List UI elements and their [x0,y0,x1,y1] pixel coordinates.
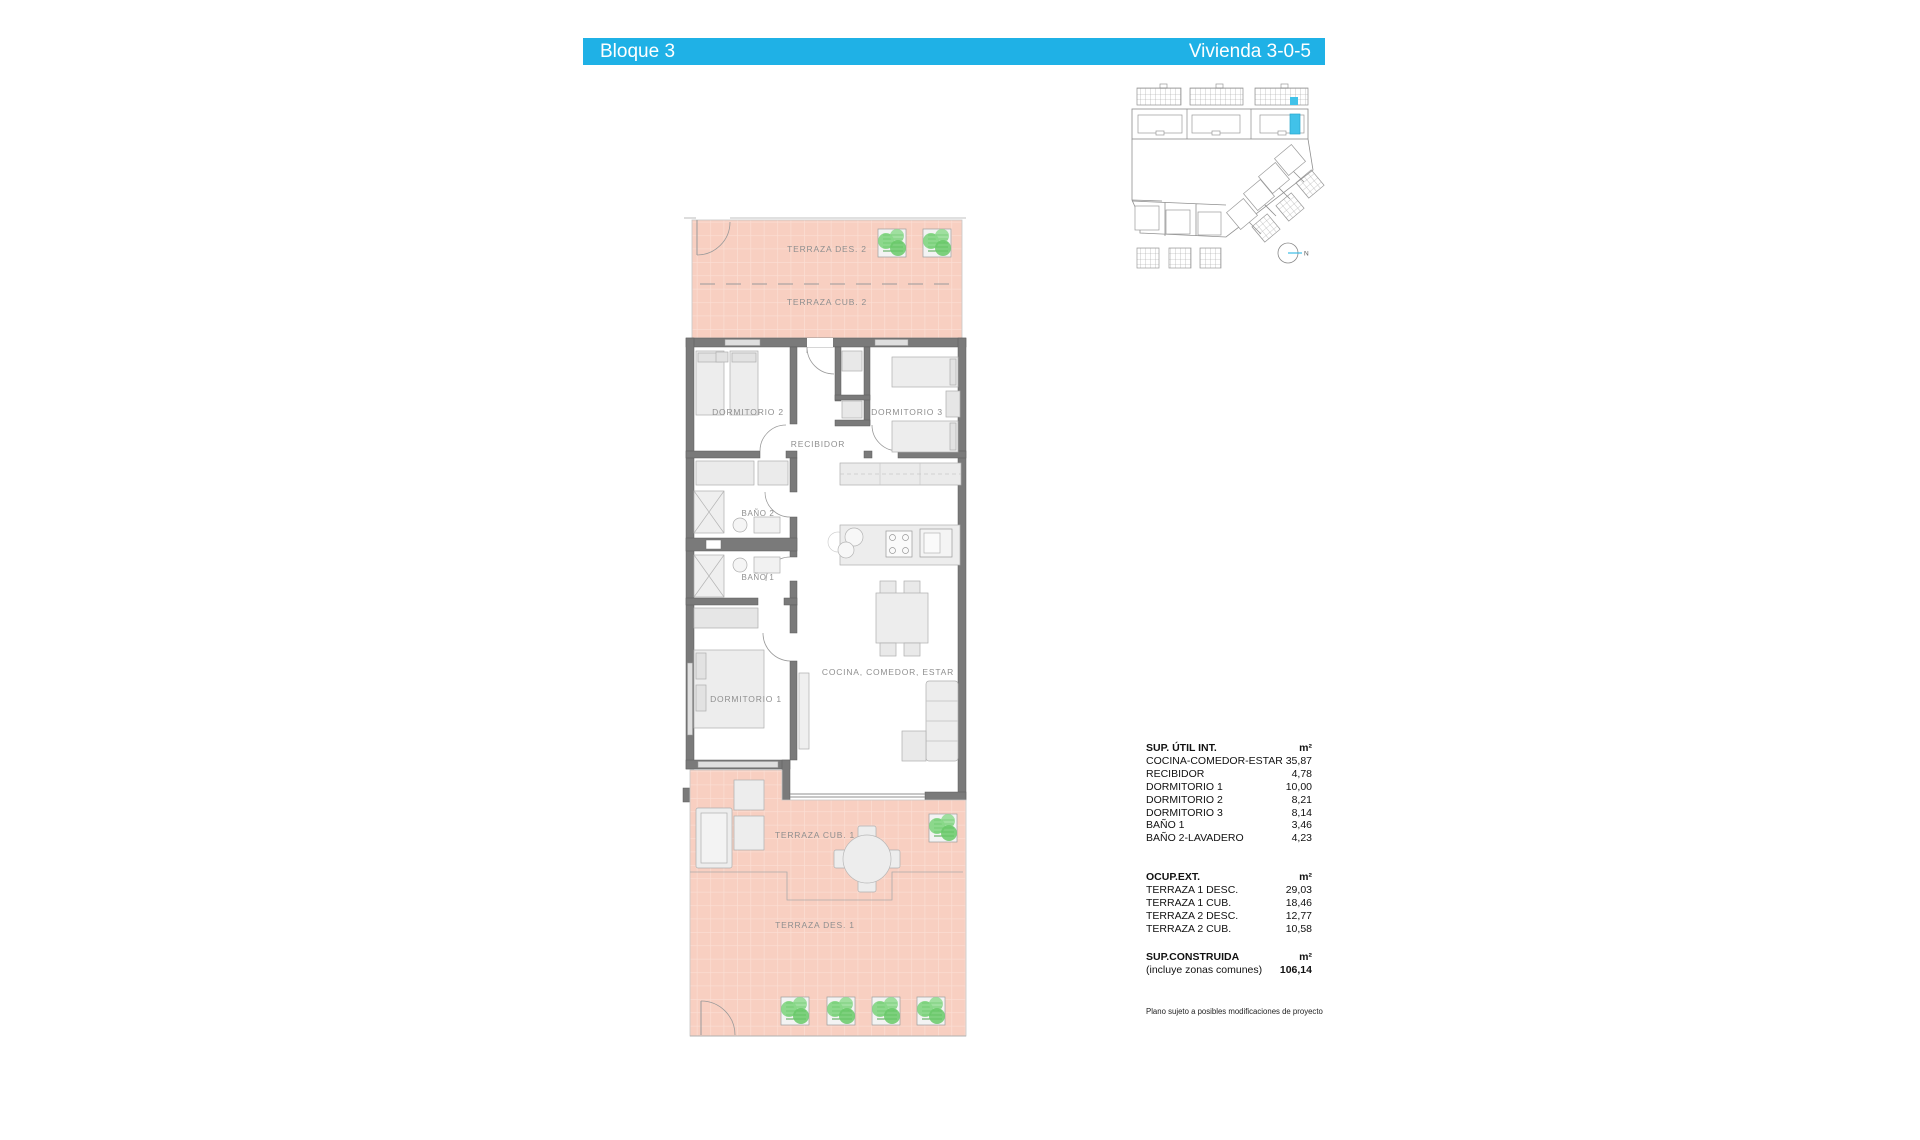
plant-icon [872,997,900,1025]
terraza-cub-2-label: TERRAZA CUB. 2 [787,297,867,307]
dormitorio-2-label: DORMITORIO 2 [712,407,784,417]
row-label: TERRAZA 2 CUB. [1146,923,1231,936]
row-value: 8,14 [1292,807,1312,820]
table-row: RECIBIDOR4,78 [1146,768,1312,781]
row-label: DORMITORIO 1 [1146,781,1223,794]
row-value: 8,21 [1292,794,1312,807]
row-value: 12,77 [1286,910,1312,923]
table-row: TERRAZA 1 CUB.18,46 [1146,897,1312,910]
row-value: 4,23 [1292,832,1312,845]
row-label: BAÑO 1 [1146,819,1185,832]
header-bar: Bloque 3 Vivienda 3-0-5 [583,38,1325,65]
row-label: DORMITORIO 2 [1146,794,1223,807]
terraza-des-2-label: TERRAZA DES. 2 [787,244,867,254]
row-value: 3,46 [1292,819,1312,832]
table-row: DORMITORIO 28,21 [1146,794,1312,807]
site-plan: N [1120,72,1340,272]
page: Bloque 3 Vivienda 3-0-5 [0,0,1920,1140]
cocina-comedor-estar-label: COCINA, COMEDOR, ESTAR [822,667,954,677]
row-value: 106,14 [1280,964,1312,977]
terraza-cub-1-label: TERRAZA CUB. 1 [775,830,855,840]
table-section-ocup-ext: OCUP.EXT. m² TERRAZA 1 DESC.29,03 TERRAZ… [1146,871,1312,936]
recibidor-label: RECIBIDOR [791,439,845,449]
section-title: SUP. ÚTIL INT. [1146,742,1217,755]
table-section-header: SUP. ÚTIL INT. m² [1146,742,1312,755]
plant-icon [929,814,957,842]
bano-2-label: BAÑO 2 [742,509,775,518]
table-section-sup-util: SUP. ÚTIL INT. m² COCINA-COMEDOR-ESTAR35… [1146,742,1312,845]
pergola-grids-top [1137,84,1308,105]
table-row: DORMITORIO 110,00 [1146,781,1312,794]
block-band [1132,109,1308,139]
dormitorio-1-label: DORMITORIO 1 [710,694,782,704]
highlighted-unit [1290,114,1300,134]
table-row: COCINA-COMEDOR-ESTAR35,87 [1146,755,1312,768]
houses [1135,145,1305,235]
section-title: SUP.CONSTRUIDA [1146,951,1239,964]
row-label: TERRAZA 2 DESC. [1146,910,1238,923]
table-row: BAÑO 13,46 [1146,819,1312,832]
plant-icon [917,997,945,1025]
section-title: OCUP.EXT. [1146,871,1200,884]
row-label: RECIBIDOR [1146,768,1204,781]
north-label: N [1304,251,1309,258]
row-label: DORMITORIO 3 [1146,807,1223,820]
row-label: TERRAZA 1 DESC. [1146,884,1238,897]
plant-icon [878,229,906,257]
row-value: 35,87 [1286,755,1312,768]
disclaimer-text: Plano sujeto a posibles modificaciones d… [1146,1007,1312,1016]
block-title: Bloque 3 [583,41,675,63]
row-value: 4,78 [1292,768,1312,781]
plant-icon [827,997,855,1025]
table-section-sup-construida: SUP.CONSTRUIDA m² (incluye zonas comunes… [1146,951,1312,977]
table-row: TERRAZA 1 DESC.29,03 [1146,884,1312,897]
row-value: 29,03 [1286,884,1312,897]
row-value: 10,00 [1286,781,1312,794]
row-label: COCINA-COMEDOR-ESTAR [1146,755,1283,768]
terraza-1: TERRAZA CUB. 1 TERRAZA DES. 1 [690,770,966,1036]
row-label: TERRAZA 1 CUB. [1146,897,1231,910]
section-unit: m² [1299,742,1312,755]
table-section-header: SUP.CONSTRUIDA m² [1146,951,1312,964]
row-value: 10,58 [1286,923,1312,936]
row-value: 18,46 [1286,897,1312,910]
areas-table: SUP. ÚTIL INT. m² COCINA-COMEDOR-ESTAR35… [1146,742,1312,1016]
section-unit: m² [1299,951,1312,964]
floor-plan: TERRAZA DES. 2 TERRAZA CUB. 2 [670,195,990,1055]
unit-title: Vivienda 3-0-5 [1189,41,1325,63]
row-label: BAÑO 2-LAVADERO [1146,832,1244,845]
table-row: BAÑO 2-LAVADERO4,23 [1146,832,1312,845]
terraza-des-1-label: TERRAZA DES. 1 [775,920,855,930]
table-row: TERRAZA 2 DESC.12,77 [1146,910,1312,923]
table-section-header: OCUP.EXT. m² [1146,871,1312,884]
north-arrow: N [1278,243,1309,263]
plant-icon [923,229,951,257]
table-row: TERRAZA 2 CUB.10,58 [1146,923,1312,936]
highlighted-terrace [1290,97,1298,105]
stove-icon [886,531,912,557]
table-row: (incluye zonas comunes)106,14 [1146,964,1312,977]
bano-1-label: BAÑO 1 [742,573,775,582]
dormitorio-3-label: DORMITORIO 3 [871,407,943,417]
section-unit: m² [1299,871,1312,884]
row-label: (incluye zonas comunes) [1146,964,1262,977]
terraza-2: TERRAZA DES. 2 TERRAZA CUB. 2 [684,218,966,338]
plant-icon [781,997,809,1025]
table-row: DORMITORIO 38,14 [1146,807,1312,820]
